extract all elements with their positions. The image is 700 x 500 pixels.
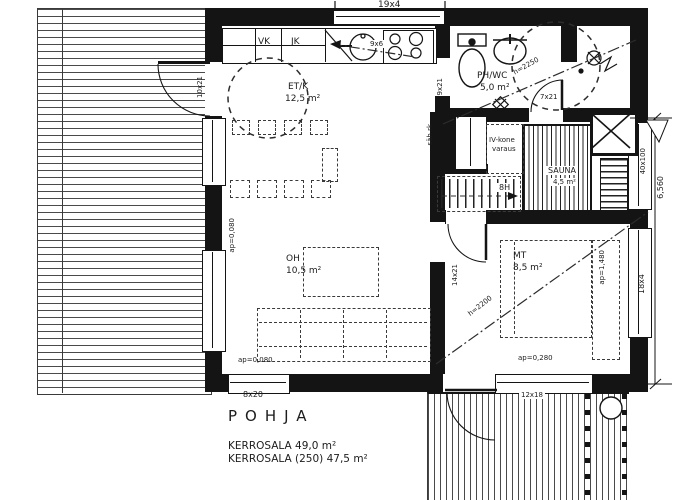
chimney-flue <box>590 112 638 156</box>
window-left-lower-glass <box>212 252 213 348</box>
kitchen-label-jk: JK <box>291 37 300 47</box>
room-area-mt: 8,5 m² <box>513 263 543 273</box>
room-label-oh: OH <box>286 254 300 264</box>
dim-right-total: 6,560 <box>656 176 665 199</box>
phwc-door-opening <box>529 108 563 122</box>
sill-oh-left: ap=0,080 <box>228 218 236 253</box>
stove-cabinet <box>383 30 434 64</box>
drawing-area-line1: KERROSALA 49,0 m² <box>228 440 336 452</box>
sofa-div-3 <box>386 310 387 358</box>
dim-oh-window: 8x20 <box>243 390 263 399</box>
deck-door-opening <box>443 374 497 392</box>
sill-oh-bottom: ap=0,080 <box>238 356 273 364</box>
wall-etk-right-upper <box>435 26 450 58</box>
wall-closet-left <box>443 112 455 172</box>
mt-door-opening-h <box>446 210 486 224</box>
window-left-lower <box>202 250 226 352</box>
chair-8 <box>311 180 331 198</box>
chair-3 <box>284 120 302 135</box>
room-area-etk: 12,5 m² <box>285 94 320 104</box>
kitchen-div-3 <box>325 28 326 62</box>
room-label-etk: ET/K <box>288 82 308 92</box>
label-stair-risers: 8H <box>497 183 512 192</box>
dim-right-upper: 40x100 <box>639 148 647 174</box>
mt-door <box>448 224 486 262</box>
dim-top-window: 19x4 <box>378 0 401 10</box>
room-label-mt: MT <box>513 251 526 261</box>
room-label-sauna: SAUNA <box>546 166 578 175</box>
window-left-upper <box>202 118 226 186</box>
cabinet-dashed <box>322 148 338 182</box>
deck-railing-posts-left <box>585 394 590 500</box>
dim-phwc-door: 7x21 <box>538 93 560 101</box>
stairs-outline <box>437 176 521 212</box>
kitchen-label-vk: VK <box>258 37 270 47</box>
closet-unit <box>455 116 487 170</box>
dim-height-mt: h=2200 <box>467 294 494 318</box>
closet-door-divider <box>470 118 471 166</box>
shower-mixer-symbol <box>579 51 617 73</box>
window-19x4-glass <box>336 16 440 17</box>
mt-door-opening-v <box>430 222 445 262</box>
dim-kitchen-door: 9x21 <box>436 78 444 96</box>
floor-plan: 19x4 VK JK 9x6 ET/K 12,5 m² PH/WC 5,0 m²… <box>0 0 700 500</box>
entry-door-opening <box>205 62 222 116</box>
kitchen-counter-edge <box>222 45 325 46</box>
window-oh-bottom-glass <box>230 382 286 383</box>
chair-1 <box>232 120 250 135</box>
dim-entry-door: 10x21 <box>196 76 204 98</box>
deck-bottom-right <box>427 392 629 500</box>
dim-sink: 9x6 <box>368 40 385 48</box>
room-area-oh: 10,5 m² <box>286 266 321 276</box>
drawing-area-line2: KERROSALA (250) 47,5 m² <box>228 453 368 465</box>
sofa-div-1 <box>300 310 301 358</box>
room-area-phwc: 5,0 m² <box>480 83 510 93</box>
window-19x4 <box>333 10 445 25</box>
dim-deck-door: 12x18 <box>519 391 545 399</box>
chair-7 <box>284 180 304 198</box>
sill-mt-right: ap=1,480 <box>598 250 606 285</box>
loft-ladder <box>600 158 628 212</box>
drawing-title: POHJA <box>228 408 315 425</box>
room-label-phwc: PH/WC <box>477 71 507 81</box>
dim-right-window: 18x4 <box>637 274 646 294</box>
wall-phwc-stub <box>561 26 577 62</box>
washbasin-symbol <box>493 34 527 64</box>
terrace-joint-line <box>62 8 63 393</box>
chair-6 <box>257 180 277 198</box>
dim-mt-door: 14x21 <box>451 264 459 286</box>
dim-height-phwc: h=2250 <box>512 56 540 77</box>
label-hvac-2: varaus <box>492 145 516 153</box>
deck-railing-posts-right <box>622 394 627 500</box>
label-hvac-1: IV-kone <box>489 136 515 144</box>
room-area-sauna: 4,5 m² <box>551 178 578 186</box>
entry-door-leaf <box>158 61 210 64</box>
terrace-left-deck <box>37 8 212 395</box>
sill-mt-bottom: ap=0,280 <box>518 354 553 362</box>
chair-5 <box>230 180 250 198</box>
chair-4 <box>310 120 328 135</box>
label-electrical-panel: säh rk <box>426 124 434 146</box>
sofa-div-2 <box>343 310 344 358</box>
window-left-upper-glass <box>212 120 213 182</box>
sofa <box>257 308 431 362</box>
window-mt-bottom-glass <box>497 382 589 383</box>
chair-2 <box>258 120 276 135</box>
